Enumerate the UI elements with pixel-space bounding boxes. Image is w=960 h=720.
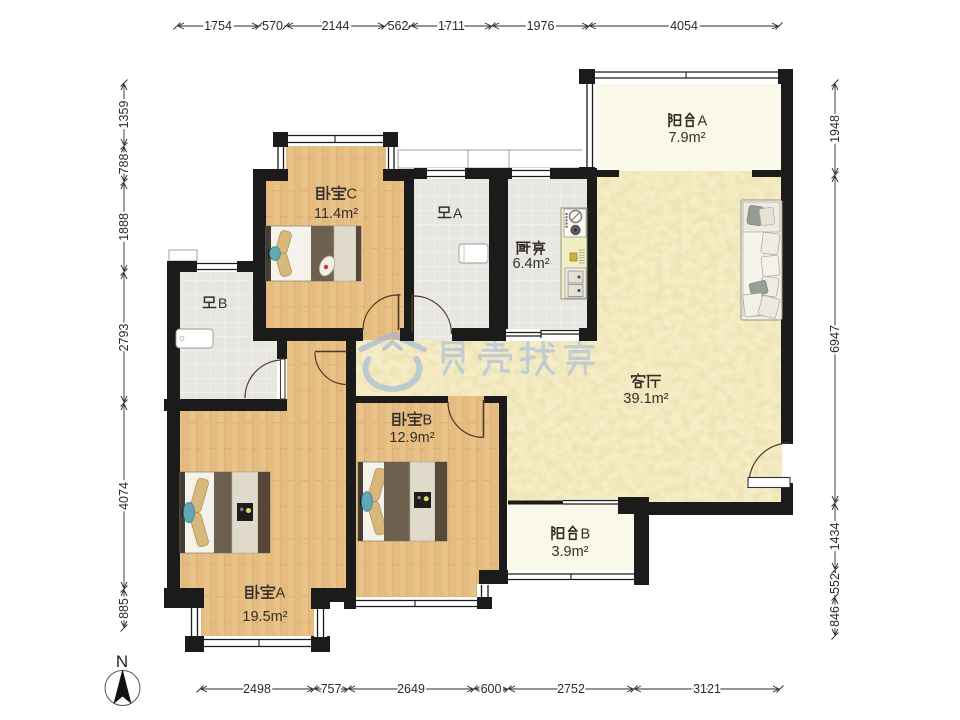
svg-text:1434: 1434 [828,523,842,551]
svg-text:2498: 2498 [243,682,271,696]
svg-text:3.9m²: 3.9m² [551,544,588,560]
svg-text:757: 757 [321,682,342,696]
svg-text:600: 600 [481,682,502,696]
svg-text:B: B [581,527,591,543]
svg-text:N: N [116,652,128,671]
svg-text:1359: 1359 [117,101,131,129]
svg-text:552: 552 [828,573,842,594]
svg-text:A: A [698,114,708,130]
svg-text:2793: 2793 [117,324,131,352]
svg-text:1711: 1711 [438,19,465,33]
svg-text:1948: 1948 [828,115,842,143]
svg-text:1888: 1888 [117,213,131,241]
svg-text:12.9m²: 12.9m² [389,430,434,446]
svg-text:7.9m²: 7.9m² [668,130,705,146]
svg-text:4074: 4074 [117,482,131,510]
svg-text:A: A [453,205,463,221]
svg-text:885: 885 [117,598,131,619]
svg-text:1976: 1976 [527,19,555,33]
svg-text:A: A [276,586,286,602]
svg-text:562: 562 [388,19,409,33]
svg-text:2752: 2752 [557,682,585,696]
svg-text:B: B [218,295,227,311]
svg-text:2144: 2144 [322,19,350,33]
svg-text:11.4m²: 11.4m² [314,206,358,222]
svg-text:39.1m²: 39.1m² [623,391,668,407]
svg-text:2649: 2649 [397,682,425,696]
svg-text:6.4m²: 6.4m² [512,256,549,272]
svg-text:B: B [423,413,433,429]
svg-text:C: C [347,187,357,203]
svg-text:4054: 4054 [670,19,698,33]
svg-text:19.5m²: 19.5m² [242,609,287,625]
svg-text:1754: 1754 [204,19,232,33]
svg-text:570: 570 [262,19,283,33]
svg-text:846: 846 [828,606,842,627]
svg-text:6947: 6947 [828,325,842,353]
svg-text:788: 788 [117,154,131,175]
svg-text:3121: 3121 [693,682,721,696]
